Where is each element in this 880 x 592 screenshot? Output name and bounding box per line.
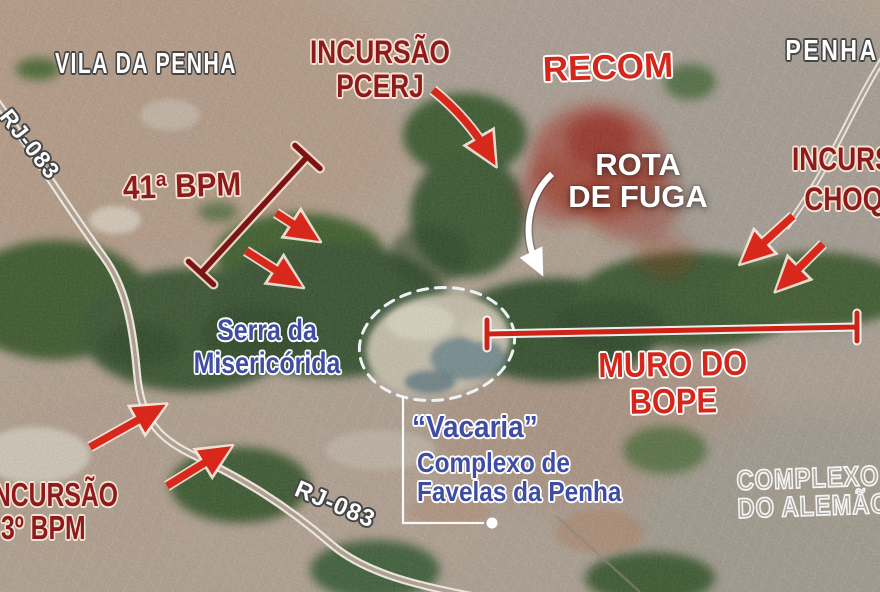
satellite-basemap (0, 0, 880, 592)
operation-map-graphic: VILA DA PENHA RJ-083 INCURSÃO PCERJ RECO… (0, 0, 880, 592)
